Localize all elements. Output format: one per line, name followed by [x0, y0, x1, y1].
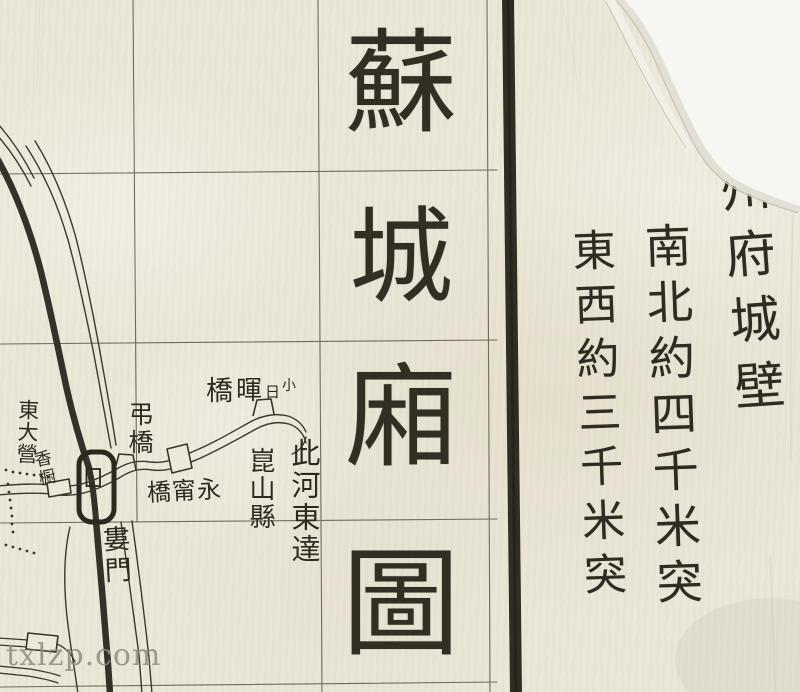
watermark-text: txlzp.com: [6, 638, 161, 673]
margin-note-north-south: 南北約四千米突: [641, 221, 701, 614]
xiaorihui-char-xiao: 小: [282, 379, 296, 393]
xiaorihui-char-ri: 日: [265, 385, 280, 400]
map-title-char-tu: 圖: [330, 545, 472, 663]
map-title-char-xiang: 廂: [330, 362, 472, 474]
xiaorihui-bridge-label: 橋 暉 日 小: [206, 378, 296, 405]
map-title-char-su: 蘇: [330, 28, 472, 140]
yongning-bridge-label: 橋甯永: [146, 477, 222, 505]
map-title-char-cheng: 城: [330, 205, 472, 309]
antique-map-scan: 蘇 城 廂 圖 蘇州府城壁 南北約四千米突 東西約三千米突 東大營 香橱 弔橋 …: [0, 0, 800, 692]
lou-gate-label: 婁門: [99, 524, 129, 587]
drawbridge-label: 弔橋: [127, 401, 152, 457]
map-border-line: [508, 0, 516, 692]
xiaorihui-char-qiao: 橋: [206, 378, 233, 405]
xiaorihui-char-hui: 暉: [236, 378, 262, 404]
river-note-column2: 崑山縣: [247, 447, 273, 531]
paper-creases-left: [37, 0, 40, 88]
margin-note-east-west: 東西約三千米突: [567, 227, 623, 606]
river-note-column1: 此河東達: [289, 438, 318, 566]
